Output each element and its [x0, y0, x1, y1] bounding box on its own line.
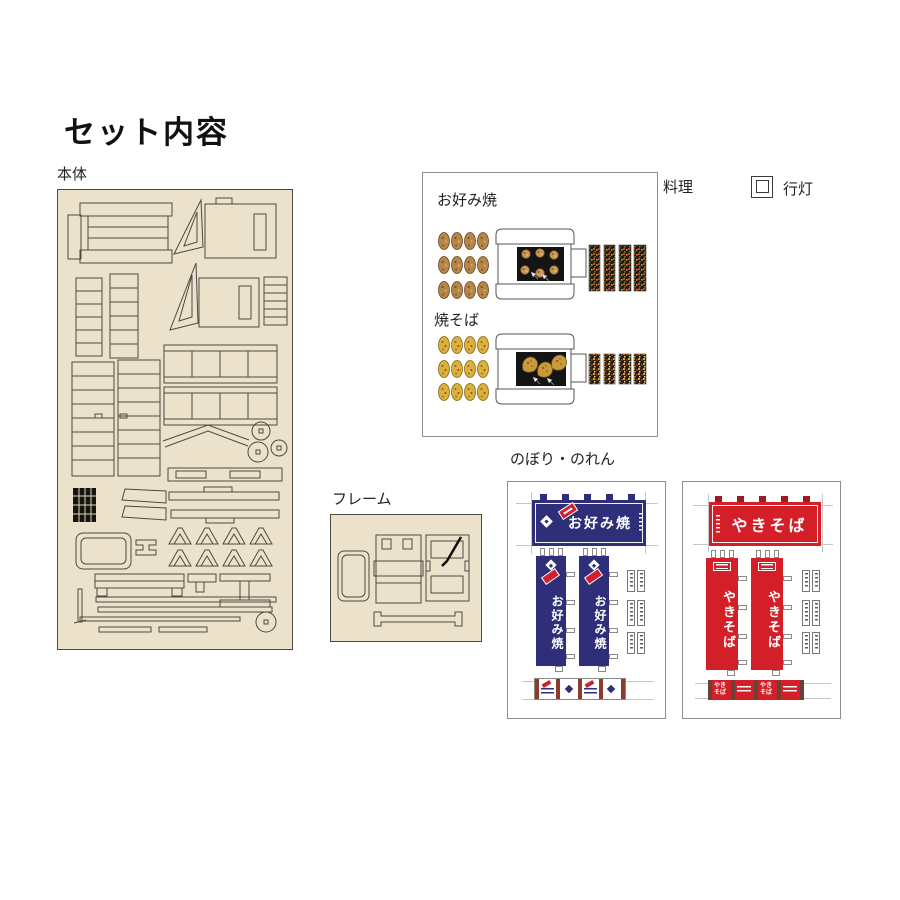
menu-strip [802, 600, 810, 626]
side-tab [566, 654, 575, 659]
nobori-vertical-text: やきそば [751, 575, 783, 664]
side-tab [783, 634, 792, 639]
menu-strip [802, 570, 810, 592]
side-tab [783, 660, 792, 665]
red-ribbon-icon [585, 569, 601, 583]
tiny-text-mark [584, 688, 597, 696]
yakisoba-nobori-flag: やきそば [706, 558, 738, 670]
frame-parts-outlines [331, 515, 481, 641]
banner-tab [540, 494, 547, 500]
side-tab [609, 572, 618, 577]
food-parts-graphics [423, 173, 657, 436]
okonomiyaki-banner-sheet: お好み焼 お好み焼 [507, 481, 666, 719]
menu-strip [637, 600, 645, 626]
noren-banner-text: やきそば [726, 502, 813, 546]
red-ribbon-icon [542, 569, 558, 583]
registration-line [822, 494, 823, 552]
food-parts-panel: お好み焼 焼そば [422, 172, 658, 437]
pole-tab [558, 548, 563, 556]
bottom-tab [772, 670, 780, 676]
small-side-text-mark [716, 515, 720, 533]
tiny-text-mark [737, 686, 751, 694]
side-tab [738, 634, 747, 639]
yakisoba-nobori-flag: やきそば [751, 558, 783, 670]
yakisoba-short-noren: やきそば やきそば [708, 680, 804, 700]
side-tab [566, 572, 575, 577]
side-tab [738, 576, 747, 581]
bottom-tab [598, 666, 606, 672]
kit-contents-illustration: セット内容 本体 [0, 0, 900, 900]
pole-tab [729, 550, 734, 558]
yakisoba-banner-sheet: やきそば やきそば [682, 481, 841, 719]
tiny-text-mark [716, 564, 728, 569]
noren-bar [599, 679, 603, 699]
side-tab [566, 628, 575, 633]
side-tab [783, 605, 792, 610]
main-parts-outlines [58, 190, 292, 649]
banners-section-label: のぼり・のれん [510, 448, 615, 469]
side-tab [738, 605, 747, 610]
lantern-icon-inner [756, 180, 769, 193]
lantern-icon [751, 176, 773, 198]
main-sheet-label: 本体 [57, 163, 87, 184]
okonomiyaki-nobori-flag: お好み焼 [579, 556, 609, 666]
nobori-vertical-text: お好み焼 [579, 583, 609, 662]
menu-strip [812, 632, 820, 654]
menu-strip [627, 570, 635, 592]
pole-tab [601, 548, 606, 556]
short-noren-text: やきそば [714, 683, 727, 697]
pole-tab [592, 548, 597, 556]
bottom-tab [555, 666, 563, 672]
noren-bar [708, 680, 712, 700]
pole-tab [765, 550, 770, 558]
side-tab [609, 600, 618, 605]
okonomiyaki-food-label: お好み焼 [437, 189, 497, 210]
pole-tab [549, 548, 554, 556]
okonomiyaki-short-noren [534, 678, 626, 700]
noren-banner-text: お好み焼 [568, 500, 640, 546]
menu-strip [812, 570, 820, 592]
page-title: セット内容 [64, 107, 229, 152]
pole-tab [720, 550, 725, 558]
noren-bar [777, 680, 781, 700]
shop-name-box [713, 562, 731, 571]
noren-bar [578, 679, 582, 699]
food-section-label: 料理 [663, 176, 693, 197]
pole-tab [711, 550, 716, 558]
menu-strip [627, 632, 635, 654]
side-tab [566, 600, 575, 605]
side-tab [783, 576, 792, 581]
pole-tab [540, 548, 545, 556]
tiny-text-mark [783, 686, 797, 694]
crest-diamond-icon [565, 685, 573, 693]
okonomiyaki-noren-banner: お好み焼 [532, 500, 646, 546]
frame-label: フレーム [332, 488, 392, 509]
pole-tab [774, 550, 779, 558]
side-tab [609, 654, 618, 659]
noren-bar [535, 679, 539, 699]
red-ribbon-icon [542, 680, 552, 688]
noren-bar [800, 680, 804, 700]
noren-bar [731, 680, 735, 700]
shop-name-box [758, 562, 776, 571]
main-parts-sheet [57, 189, 293, 650]
crest-diamond-icon [607, 685, 615, 693]
pole-tab [756, 550, 761, 558]
tiny-text-mark [761, 564, 773, 569]
menu-strip [812, 600, 820, 626]
short-noren-text: やきそば [760, 683, 773, 697]
frame-parts-sheet [330, 514, 482, 642]
bottom-tab [727, 670, 735, 676]
okonomiyaki-nobori-flag: お好み焼 [536, 556, 566, 666]
noren-bar [556, 679, 560, 699]
menu-strip [627, 600, 635, 626]
side-tab [609, 628, 618, 633]
nobori-vertical-text: やきそば [706, 575, 738, 664]
menu-strip [802, 632, 810, 654]
pole-tab [583, 548, 588, 556]
side-tab [738, 660, 747, 665]
red-ribbon-icon [585, 680, 595, 688]
lantern-label: 行灯 [783, 178, 813, 199]
small-side-text-mark [639, 513, 643, 531]
menu-strip [637, 570, 645, 592]
tiny-text-mark [541, 688, 554, 696]
noren-bar [621, 679, 625, 699]
banner-tab [715, 496, 722, 502]
noren-bar [754, 680, 758, 700]
nobori-vertical-text: お好み焼 [536, 583, 566, 662]
yakisoba-noren-banner: やきそば [709, 502, 821, 546]
yakisoba-food-label: 焼そば [434, 309, 479, 330]
menu-strip [637, 632, 645, 654]
